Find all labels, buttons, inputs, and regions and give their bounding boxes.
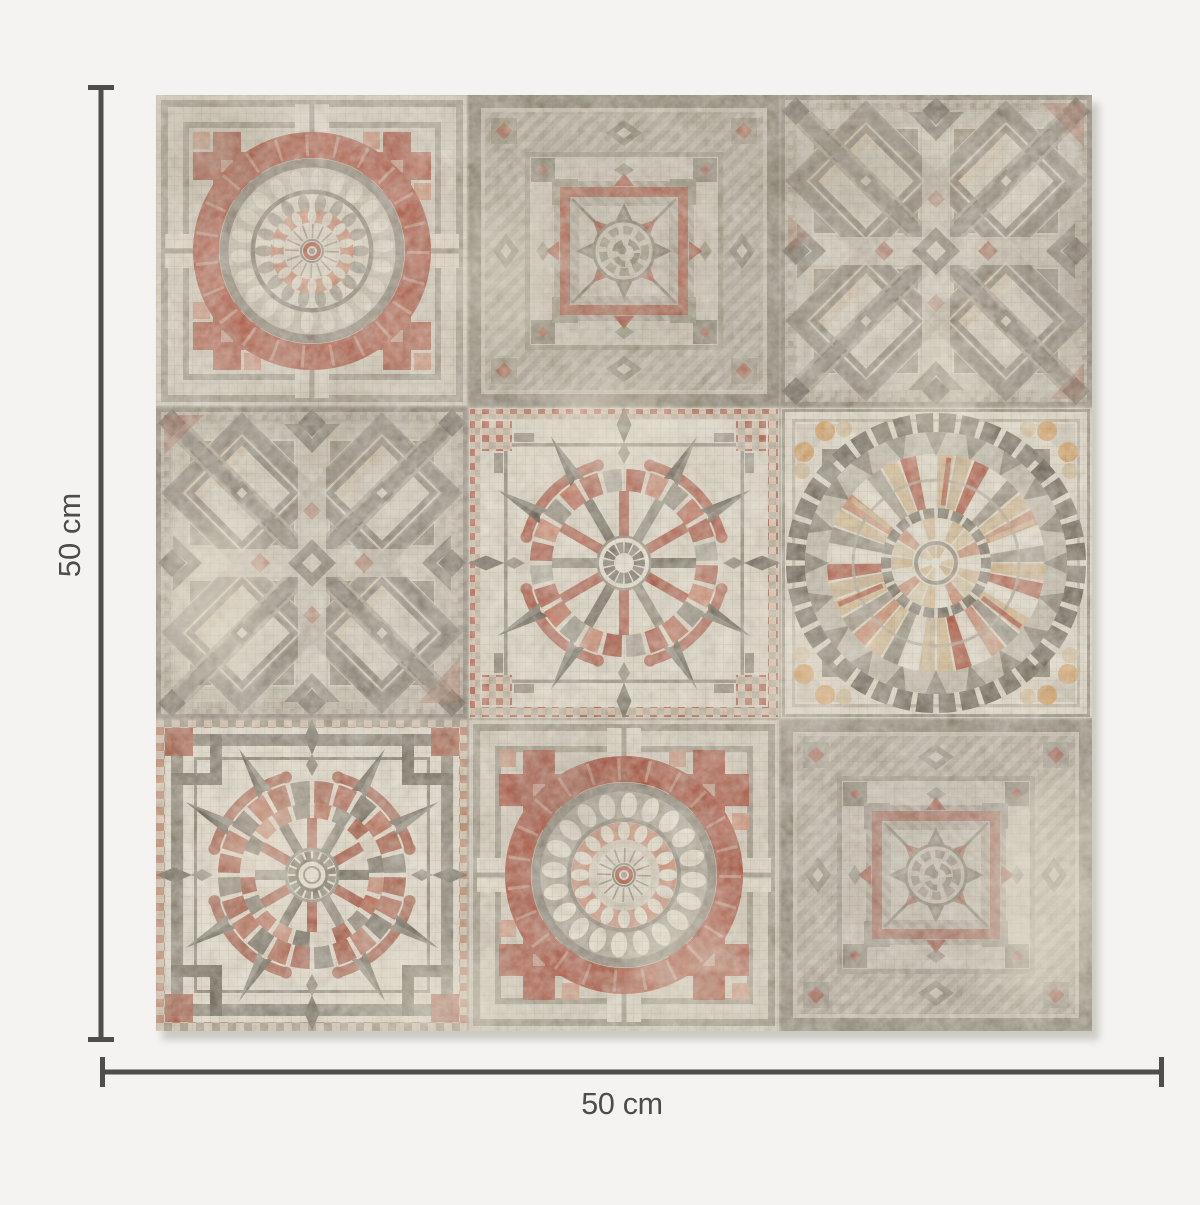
svg-text:50 cm: 50 cm — [581, 1087, 663, 1121]
svg-text:50 cm: 50 cm — [52, 493, 87, 577]
